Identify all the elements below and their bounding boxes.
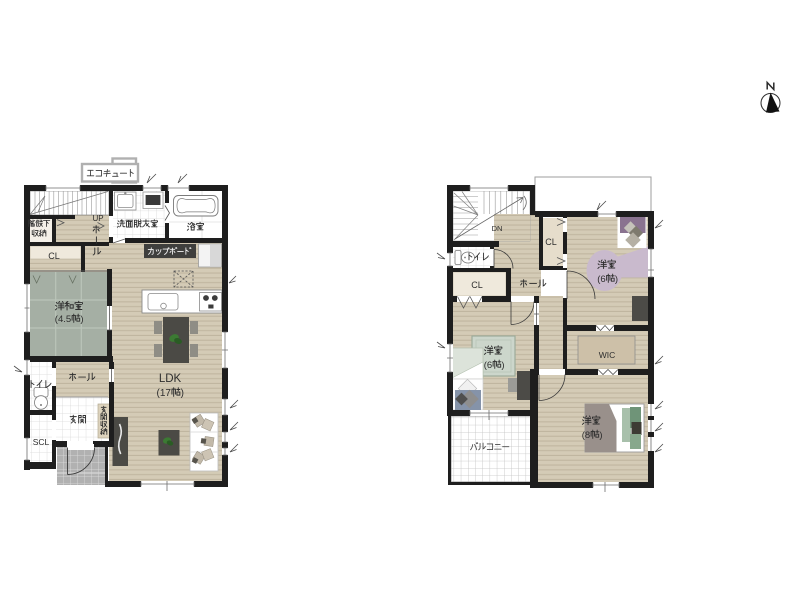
svg-text:LDK: LDK <box>159 373 182 385</box>
svg-text:DN: DN <box>492 224 503 233</box>
svg-text:): ) <box>80 314 83 325</box>
svg-text:): ) <box>501 360 504 371</box>
svg-text:): ) <box>599 430 602 441</box>
svg-text:SCL: SCL <box>33 437 50 447</box>
svg-text:UP: UP <box>92 214 103 223</box>
svg-text:CL: CL <box>545 237 557 247</box>
svg-text:CL: CL <box>48 251 60 261</box>
svg-text:(17: (17 <box>157 388 172 399</box>
svg-text:): ) <box>181 388 184 399</box>
svg-text:(6: (6 <box>597 274 605 285</box>
svg-text:WIC: WIC <box>599 350 616 360</box>
svg-text:CL: CL <box>471 280 483 290</box>
svg-text:(4.5: (4.5 <box>55 314 71 325</box>
svg-text:(8: (8 <box>582 430 590 441</box>
svg-text:): ) <box>615 274 618 285</box>
svg-text:(6: (6 <box>484 360 492 371</box>
